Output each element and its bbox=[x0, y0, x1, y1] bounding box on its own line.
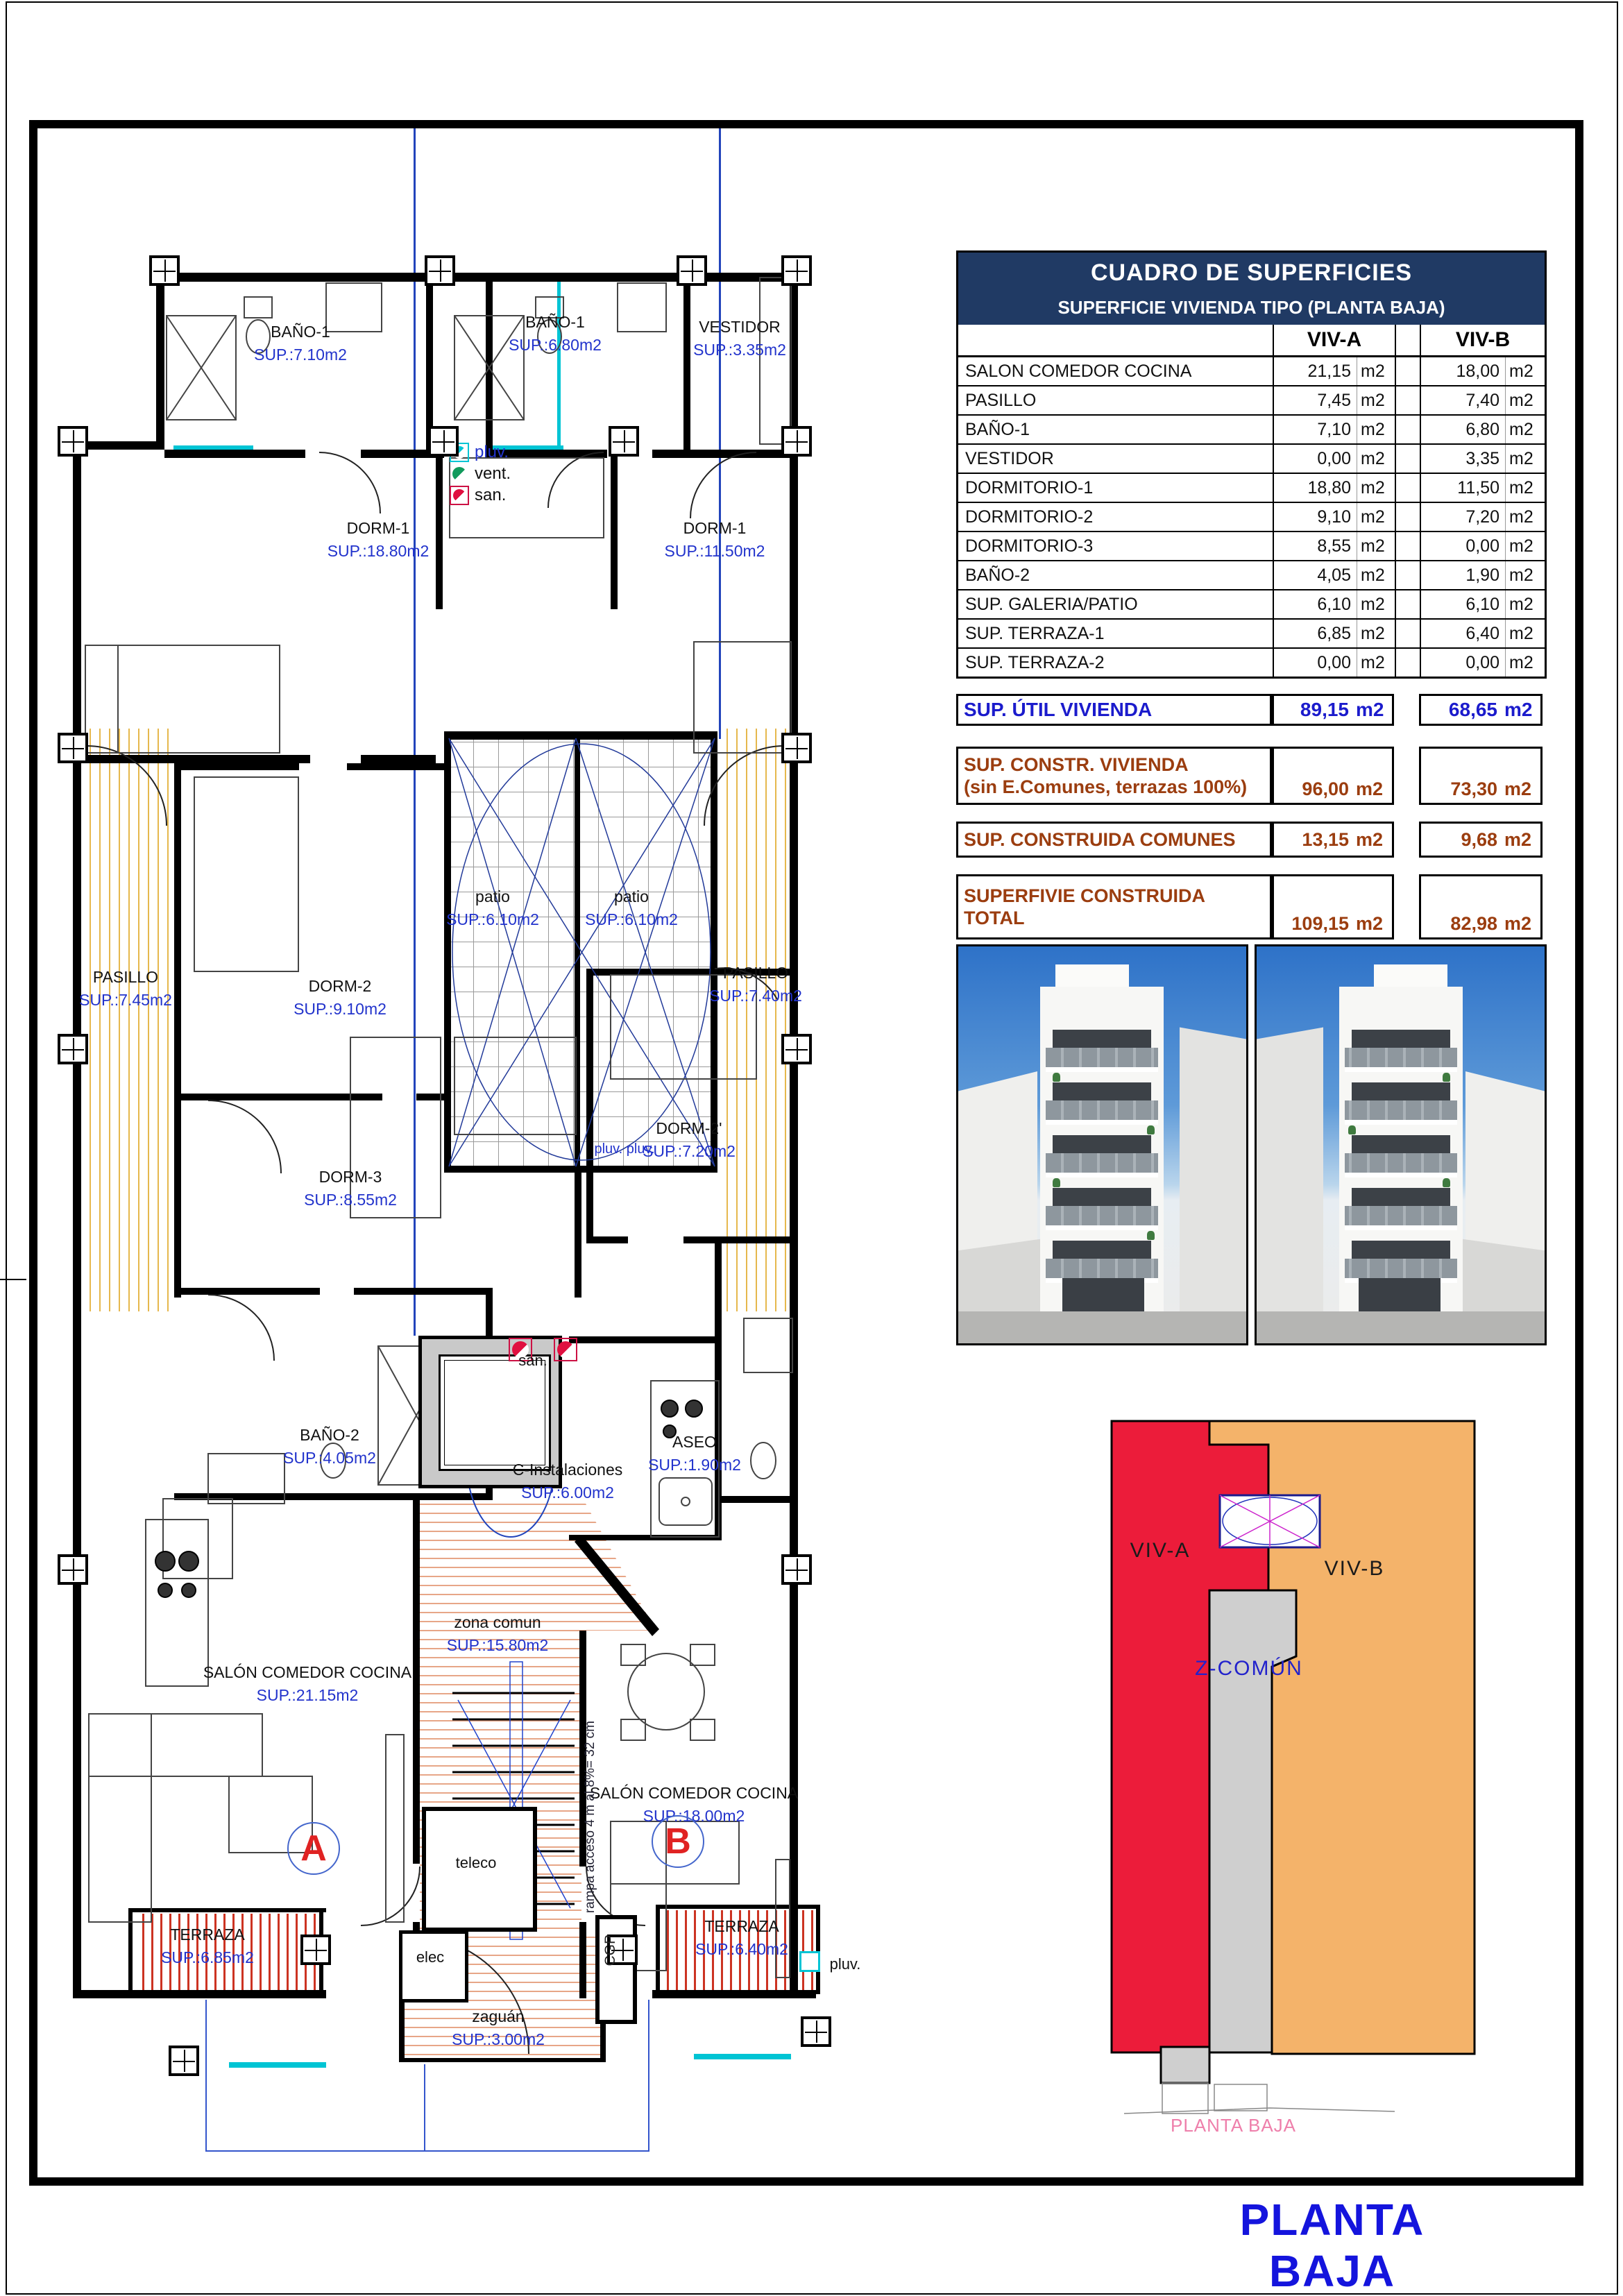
table-cell: DORMITORIO-1 bbox=[958, 474, 1274, 502]
table-cell: 7,10 bbox=[1274, 416, 1357, 443]
legend-row: pluv. bbox=[450, 443, 511, 462]
key-diagram-caption: PLANTA BAJA bbox=[1171, 2115, 1296, 2136]
table-row: BAÑO-24,05m21,90m2 bbox=[958, 561, 1545, 590]
summary-value: 9,68 bbox=[1421, 829, 1502, 851]
table-summary: SUP. ÚTIL VIVIENDA89,15m268,65m2SUP. CON… bbox=[956, 694, 1547, 939]
column-marker bbox=[781, 255, 812, 286]
table-row: DORMITORIO-38,55m20,00m2 bbox=[958, 532, 1545, 561]
summary-unit: m2 bbox=[1502, 829, 1540, 851]
room-name: BAÑO-1 bbox=[254, 321, 347, 343]
summary-value-box: 82,98m2 bbox=[1419, 874, 1543, 939]
room-name: DORM-2 bbox=[294, 975, 386, 998]
balcony-row bbox=[1345, 1082, 1457, 1127]
column-marker bbox=[169, 2046, 199, 2076]
room-area: SUP.:6.80m2 bbox=[509, 334, 602, 357]
table-cell: VESTIDOR bbox=[958, 445, 1274, 473]
summary-gap bbox=[1394, 694, 1419, 726]
summary-unit: m2 bbox=[1502, 779, 1540, 803]
balcony-row bbox=[1345, 1030, 1457, 1074]
column-marker bbox=[58, 1034, 88, 1064]
column-marker bbox=[781, 1034, 812, 1064]
room-area: SUP.:7.45m2 bbox=[79, 989, 172, 1012]
room-name: zaguán bbox=[452, 2005, 545, 2028]
legend-label: pluv. bbox=[475, 443, 509, 462]
summary-unit: m2 bbox=[1353, 913, 1392, 937]
room-name: TERRAZA bbox=[161, 1923, 254, 1946]
unit-a-letter: A bbox=[300, 1828, 327, 1869]
table-cell: m2 bbox=[1506, 416, 1545, 443]
room-label: BAÑO-1SUP.:7.10m2 bbox=[254, 321, 347, 367]
render-scene bbox=[1257, 946, 1545, 1343]
key-diagram bbox=[1096, 1409, 1485, 2123]
table-cell bbox=[1396, 561, 1421, 589]
san-icon bbox=[450, 486, 469, 505]
plant bbox=[1053, 1178, 1060, 1187]
room-label: TERRAZASUP.:6.40m2 bbox=[695, 1915, 788, 1962]
summary-value-box: 109,15m2 bbox=[1272, 874, 1394, 939]
summary-label: SUP. CONSTR. VIVIENDA bbox=[964, 754, 1189, 776]
column-marker bbox=[781, 1554, 812, 1585]
room-area: SUP.:3.35m2 bbox=[693, 339, 786, 362]
column-marker bbox=[677, 255, 707, 286]
summary-label: SUP. ÚTIL VIVIENDA bbox=[964, 698, 1152, 722]
room-area: SUP.:15.80m2 bbox=[447, 1634, 549, 1657]
teleco-label: teleco bbox=[456, 1854, 497, 1872]
table-cell: m2 bbox=[1357, 445, 1396, 473]
summary-value: 68,65 bbox=[1421, 699, 1502, 721]
summary-value: 96,00 bbox=[1274, 779, 1353, 803]
ramp-note: rampa acceso 4 m al 8%= 32 cm bbox=[583, 1721, 598, 1913]
room-label: ASEOSUP.:1.90m2 bbox=[648, 1431, 741, 1477]
table-row: DORMITORIO-29,10m27,20m2 bbox=[958, 503, 1545, 532]
room-area: SUP.:4.05m2 bbox=[283, 1447, 376, 1470]
table-cell: m2 bbox=[1357, 503, 1396, 531]
building-render-left bbox=[956, 944, 1248, 1345]
summary-unit: m2 bbox=[1502, 913, 1540, 937]
table-cell bbox=[1396, 590, 1421, 618]
room-label: TERRAZASUP.:6.85m2 bbox=[161, 1923, 254, 1970]
table-cell: m2 bbox=[1506, 445, 1545, 473]
table-row: VESTIDOR0,00m23,35m2 bbox=[958, 445, 1545, 474]
table-cell: BAÑO-2 bbox=[958, 561, 1274, 589]
key-viv-a-label: VIV-A bbox=[1130, 1539, 1191, 1563]
table-cell: 0,00 bbox=[1421, 649, 1506, 677]
table-cell: DORMITORIO-3 bbox=[958, 532, 1274, 560]
table-row: PASILLO7,45m27,40m2 bbox=[958, 386, 1545, 416]
table-cell: 0,00 bbox=[1274, 649, 1357, 677]
balcony-row bbox=[1046, 1135, 1158, 1180]
column-marker bbox=[58, 1554, 88, 1585]
neighbor-wall bbox=[1180, 1028, 1248, 1342]
column-marker bbox=[149, 255, 180, 286]
building-entrance bbox=[1359, 1278, 1441, 1316]
table-cell: m2 bbox=[1506, 561, 1545, 589]
room-label: zaguánSUP.:3.00m2 bbox=[452, 2005, 545, 2052]
room-name: DORM-2' bbox=[643, 1117, 736, 1140]
balcony-row bbox=[1046, 1188, 1158, 1232]
vent-icon bbox=[450, 464, 469, 484]
plant bbox=[1147, 1231, 1155, 1240]
table-cell: m2 bbox=[1357, 532, 1396, 560]
pluv-patio-label: pluv. pluv. bbox=[594, 1141, 654, 1157]
summary-value: 109,15 bbox=[1274, 913, 1353, 937]
table-cell: 6,85 bbox=[1274, 620, 1357, 647]
summary-gap bbox=[1394, 874, 1419, 939]
room-area: SUP.:8.55m2 bbox=[304, 1189, 397, 1211]
col-viv-b: VIV-B bbox=[1421, 325, 1545, 355]
room-label: DORM-1SUP.:18.80m2 bbox=[328, 517, 430, 563]
table-cell: 18,80 bbox=[1274, 474, 1357, 502]
room-label: DORM-3SUP.:8.55m2 bbox=[304, 1166, 397, 1212]
table-cell: SUP. TERRAZA-1 bbox=[958, 620, 1274, 647]
table-cell: 7,20 bbox=[1421, 503, 1506, 531]
table-cell: SALON COMEDOR COCINA bbox=[958, 357, 1274, 385]
table-cell: SUP. GALERIA/PATIO bbox=[958, 590, 1274, 618]
column-marker bbox=[425, 255, 455, 286]
ground-sketch bbox=[1124, 2083, 1395, 2114]
balcony-row bbox=[1046, 1030, 1158, 1074]
summary-value-box: 68,65m2 bbox=[1419, 694, 1543, 726]
summary-row: SUP. ÚTIL VIVIENDA89,15m268,65m2 bbox=[956, 694, 1547, 726]
cgp-label: CGP bbox=[602, 1934, 619, 1966]
summary-row: SUP. CONSTRUIDA COMUNES13,15m29,68m2 bbox=[956, 822, 1547, 858]
room-name: TERRAZA bbox=[695, 1915, 788, 1938]
room-name: DORM-1 bbox=[665, 517, 765, 540]
table-cell: m2 bbox=[1357, 620, 1396, 647]
key-viv-b-label: VIV-B bbox=[1325, 1557, 1385, 1581]
room-label: DORM-1SUP.:11.50m2 bbox=[665, 517, 765, 563]
balcony-row bbox=[1345, 1135, 1457, 1180]
table-cell bbox=[1396, 416, 1421, 443]
room-name: PASILLO bbox=[709, 962, 802, 985]
room-name: BAÑO-2 bbox=[283, 1424, 376, 1447]
column-marker bbox=[300, 1934, 331, 1965]
table-cell: DORMITORIO-2 bbox=[958, 503, 1274, 531]
room-area: SUP.:1.90m2 bbox=[648, 1454, 741, 1477]
elec-room bbox=[399, 1930, 468, 2002]
table-cell: 0,00 bbox=[1421, 532, 1506, 560]
column-marker bbox=[428, 426, 459, 457]
table-cell bbox=[1396, 445, 1421, 473]
summary-label-2: (sin E.Comunes, terrazas 100%) bbox=[964, 776, 1247, 798]
patio-markings bbox=[449, 738, 715, 1166]
room-area: SUP.:7.40m2 bbox=[709, 985, 802, 1007]
room-area: SUP.:7.10m2 bbox=[254, 343, 347, 366]
room-area: SUP.:7.20m2 bbox=[643, 1140, 736, 1163]
table-cell: 18,00 bbox=[1421, 357, 1506, 385]
plant bbox=[1443, 1073, 1450, 1082]
summary-unit: m2 bbox=[1353, 779, 1392, 803]
floor-plan: pluv.vent.san. BAÑO-1SUP.:7.10m2BAÑO-1SU… bbox=[0, 0, 944, 2296]
summary-gap bbox=[1394, 747, 1419, 805]
column-marker bbox=[801, 2016, 831, 2047]
table-cell: m2 bbox=[1506, 620, 1545, 647]
room-label: patioSUP.:6.10m2 bbox=[585, 885, 678, 932]
table-cell: 3,35 bbox=[1421, 445, 1506, 473]
room-label: zona comunSUP.:15.80m2 bbox=[447, 1611, 549, 1658]
room-label: patioSUP.:6.10m2 bbox=[446, 885, 539, 932]
table-cell: m2 bbox=[1506, 532, 1545, 560]
render-scene bbox=[958, 946, 1246, 1343]
legend-row: san. bbox=[450, 486, 511, 505]
surface-table-main: CUADRO DE SUPERFICIES SUPERFICIE VIVIEND… bbox=[956, 250, 1547, 679]
summary-unit: m2 bbox=[1353, 699, 1392, 721]
room-area: SUP.:6.10m2 bbox=[585, 908, 678, 931]
table-cell: 7,45 bbox=[1274, 386, 1357, 414]
plant bbox=[1053, 1073, 1060, 1082]
table-cell: m2 bbox=[1357, 590, 1396, 618]
room-name: DORM-3 bbox=[304, 1166, 397, 1189]
table-row: SUP. TERRAZA-16,85m26,40m2 bbox=[958, 620, 1545, 649]
room-label: BAÑO-2SUP.:4.05m2 bbox=[283, 1424, 376, 1470]
summary-value-box: 13,15m2 bbox=[1272, 822, 1394, 858]
room-area: SUP.:6.85m2 bbox=[161, 1946, 254, 1969]
plant bbox=[1147, 1125, 1155, 1134]
table-cell: m2 bbox=[1357, 474, 1396, 502]
building-render-right bbox=[1255, 944, 1547, 1345]
table-row: DORMITORIO-118,80m211,50m2 bbox=[958, 474, 1545, 503]
room-name: patio bbox=[585, 885, 678, 908]
summary-row: SUP. CONSTR. VIVIENDA(sin E.Comunes, ter… bbox=[956, 747, 1547, 805]
table-cell: 6,10 bbox=[1274, 590, 1357, 618]
room-area: SUP.:18.80m2 bbox=[328, 540, 430, 563]
table-cell bbox=[1396, 532, 1421, 560]
table-cell: BAÑO-1 bbox=[958, 416, 1274, 443]
room-area: SUP.:11.50m2 bbox=[665, 540, 765, 563]
table-cell: m2 bbox=[1506, 474, 1545, 502]
room-name: PASILLO bbox=[79, 966, 172, 989]
table-cell bbox=[1396, 357, 1421, 385]
table-cell: 6,40 bbox=[1421, 620, 1506, 647]
table-row: BAÑO-17,10m26,80m2 bbox=[958, 416, 1545, 445]
table-cell: m2 bbox=[1357, 416, 1396, 443]
summary-gap bbox=[1394, 822, 1419, 858]
room-area: SUP.:6.00m2 bbox=[513, 1481, 623, 1504]
summary-label: SUPERFIVIE CONSTRUIDA bbox=[964, 885, 1205, 907]
table-row: SUP. TERRAZA-20,00m20,00m2 bbox=[958, 649, 1545, 677]
san-shaft-label: san. bbox=[518, 1352, 547, 1370]
column-marker bbox=[781, 733, 812, 763]
table-cell: m2 bbox=[1506, 503, 1545, 531]
summary-value-box: 9,68m2 bbox=[1419, 822, 1543, 858]
table-row: SUP. GALERIA/PATIO6,10m26,10m2 bbox=[958, 590, 1545, 620]
room-name: patio bbox=[446, 885, 539, 908]
room-label: VESTIDORSUP.:3.35m2 bbox=[693, 316, 786, 362]
elevator-cab bbox=[439, 1354, 551, 1471]
balcony-row bbox=[1046, 1082, 1158, 1127]
column-marker bbox=[58, 733, 88, 763]
room-area: SUP.:21.15m2 bbox=[203, 1684, 411, 1707]
table-subtitle: SUPERFICIE VIVIENDA TIPO (PLANTA BAJA) bbox=[958, 293, 1545, 325]
room-area: SUP.:3.00m2 bbox=[452, 2028, 545, 2051]
room-name: zona comun bbox=[447, 1611, 549, 1634]
table-cell: 9,10 bbox=[1274, 503, 1357, 531]
room-label: DORM-2'SUP.:7.20m2 bbox=[643, 1117, 736, 1164]
table-cell: m2 bbox=[1506, 590, 1545, 618]
surface-table: CUADRO DE SUPERFICIES SUPERFICIE VIVIEND… bbox=[956, 250, 1547, 939]
legend-label: vent. bbox=[475, 464, 511, 484]
table-cell: SUP. TERRAZA-2 bbox=[958, 649, 1274, 677]
table-cell: PASILLO bbox=[958, 386, 1274, 414]
table-cell: 6,80 bbox=[1421, 416, 1506, 443]
room-area: SUP.:6.40m2 bbox=[695, 1938, 788, 1961]
balcony-row bbox=[1345, 1188, 1457, 1232]
pluv-bottom-label: pluv. bbox=[830, 1955, 861, 1973]
room-label: PASILLOSUP.:7.40m2 bbox=[709, 962, 802, 1008]
table-cell bbox=[1396, 649, 1421, 677]
summary-value: 82,98 bbox=[1421, 913, 1502, 937]
table-cell: 6,10 bbox=[1421, 590, 1506, 618]
room-label: DORM-2SUP.:9.10m2 bbox=[294, 975, 386, 1021]
table-cell: 7,40 bbox=[1421, 386, 1506, 414]
column-marker bbox=[781, 426, 812, 457]
neighbor-wall bbox=[1255, 1028, 1323, 1342]
table-cell: 21,15 bbox=[1274, 357, 1357, 385]
summary-value: 13,15 bbox=[1274, 829, 1353, 851]
pluv-bottom-icon bbox=[799, 1951, 820, 1972]
room-name: C-Instalaciones bbox=[513, 1459, 623, 1481]
unit-a-mark: A bbox=[287, 1822, 340, 1875]
room-area: SUP.:9.10m2 bbox=[294, 998, 386, 1021]
table-cell: m2 bbox=[1357, 649, 1396, 677]
room-name: DORM-1 bbox=[328, 517, 430, 540]
drawing-sheet: pluv.vent.san. BAÑO-1SUP.:7.10m2BAÑO-1SU… bbox=[0, 0, 1623, 2296]
building-entrance bbox=[1062, 1278, 1144, 1316]
table-cell: m2 bbox=[1506, 649, 1545, 677]
zone-z-comun-tab bbox=[1161, 2047, 1209, 2083]
key-z-comun-label: Z-COMÚN bbox=[1195, 1657, 1303, 1681]
table-cell: 11,50 bbox=[1421, 474, 1506, 502]
room-label: BAÑO-1SUP.:6.80m2 bbox=[509, 311, 602, 357]
column-marker bbox=[58, 426, 88, 457]
room-name: VESTIDOR bbox=[693, 316, 786, 339]
table-cell: 4,05 bbox=[1274, 561, 1357, 589]
table-cell bbox=[1396, 503, 1421, 531]
room-label: C-InstalacionesSUP.:6.00m2 bbox=[513, 1459, 623, 1505]
diagonal-wall bbox=[575, 1535, 659, 1636]
table-cell: 8,55 bbox=[1274, 532, 1357, 560]
summary-value-box: 89,15m2 bbox=[1272, 694, 1394, 726]
summary-label-2: TOTAL bbox=[964, 907, 1025, 929]
table-cell bbox=[1396, 620, 1421, 647]
boundary-lines bbox=[206, 2000, 649, 2151]
summary-label: SUP. CONSTRUIDA COMUNES bbox=[964, 828, 1236, 851]
table-cell: 0,00 bbox=[1274, 445, 1357, 473]
unit-b-mark: B bbox=[652, 1815, 704, 1868]
summary-value-box: 73,30m2 bbox=[1419, 747, 1543, 805]
table-cell: m2 bbox=[1357, 357, 1396, 385]
room-label: SALÓN COMEDOR COCINASUP.:21.15m2 bbox=[203, 1661, 411, 1708]
table-cell bbox=[1396, 386, 1421, 414]
table-cell: m2 bbox=[1506, 386, 1545, 414]
street-ground bbox=[1257, 1311, 1545, 1343]
table-rows: SALON COMEDOR COCINA21,15m218,00m2PASILL… bbox=[958, 357, 1545, 677]
plant bbox=[1348, 1125, 1356, 1134]
summary-value-box: 96,00m2 bbox=[1272, 747, 1394, 805]
summary-row: SUPERFIVIE CONSTRUIDATOTAL109,15m282,98m… bbox=[956, 874, 1547, 939]
elec-label: elec bbox=[416, 1948, 444, 1966]
column-marker bbox=[609, 426, 639, 457]
plan-legend: pluv.vent.san. bbox=[450, 443, 511, 507]
legend-row: vent. bbox=[450, 464, 511, 484]
table-column-header: VIV-A VIV-B bbox=[958, 325, 1545, 357]
table-cell: 1,90 bbox=[1421, 561, 1506, 589]
street-ground bbox=[958, 1311, 1246, 1343]
room-area: SUP.:6.10m2 bbox=[446, 908, 539, 931]
room-name: ASEO bbox=[648, 1431, 741, 1454]
summary-value: 89,15 bbox=[1274, 699, 1353, 721]
room-label: PASILLOSUP.:7.45m2 bbox=[79, 966, 172, 1012]
table-title: CUADRO DE SUPERFICIES bbox=[958, 253, 1545, 293]
summary-unit: m2 bbox=[1353, 829, 1392, 851]
table-cell: m2 bbox=[1506, 357, 1545, 385]
table-cell: m2 bbox=[1357, 561, 1396, 589]
table-cell: m2 bbox=[1357, 386, 1396, 414]
summary-unit: m2 bbox=[1502, 699, 1540, 721]
table-cell bbox=[1396, 474, 1421, 502]
table-row: SALON COMEDOR COCINA21,15m218,00m2 bbox=[958, 357, 1545, 386]
room-name: BAÑO-1 bbox=[509, 311, 602, 334]
unit-b-letter: B bbox=[665, 1821, 691, 1862]
cgp-box bbox=[595, 1915, 637, 2024]
legend-label: san. bbox=[475, 486, 506, 505]
room-name: SALÓN COMEDOR COCINA bbox=[590, 1782, 798, 1805]
summary-value: 73,30 bbox=[1421, 779, 1502, 803]
sheet-title: PLANTA BAJA bbox=[1173, 2194, 1492, 2296]
san-icon bbox=[554, 1338, 577, 1361]
room-name: SALÓN COMEDOR COCINA bbox=[203, 1661, 411, 1684]
col-viv-a: VIV-A bbox=[1274, 325, 1396, 355]
plant bbox=[1443, 1178, 1450, 1187]
